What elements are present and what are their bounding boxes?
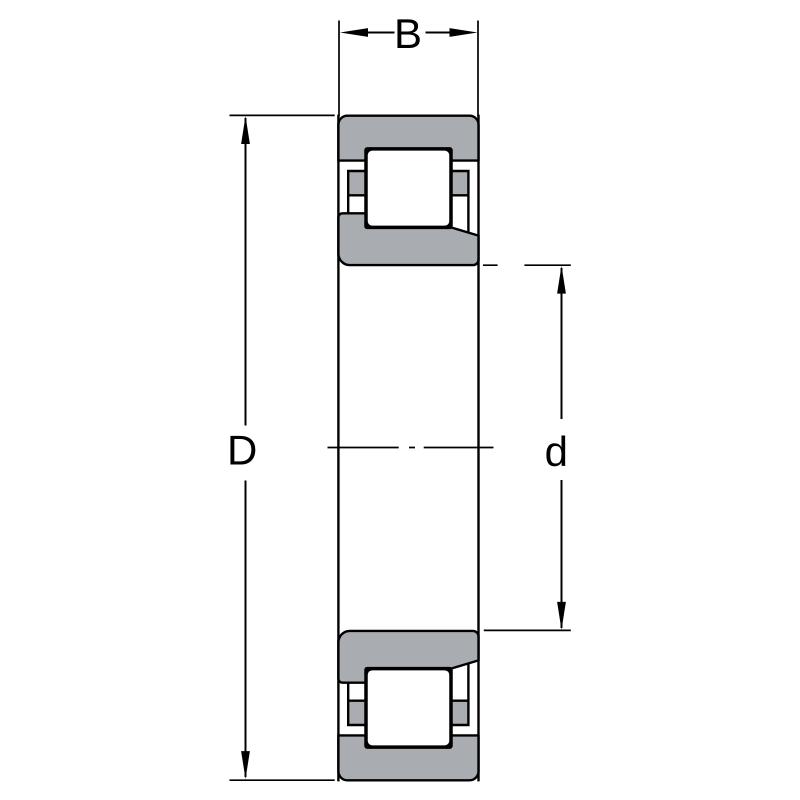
svg-text:d: d xyxy=(545,428,568,475)
svg-text:B: B xyxy=(394,10,422,57)
svg-text:D: D xyxy=(227,427,257,474)
